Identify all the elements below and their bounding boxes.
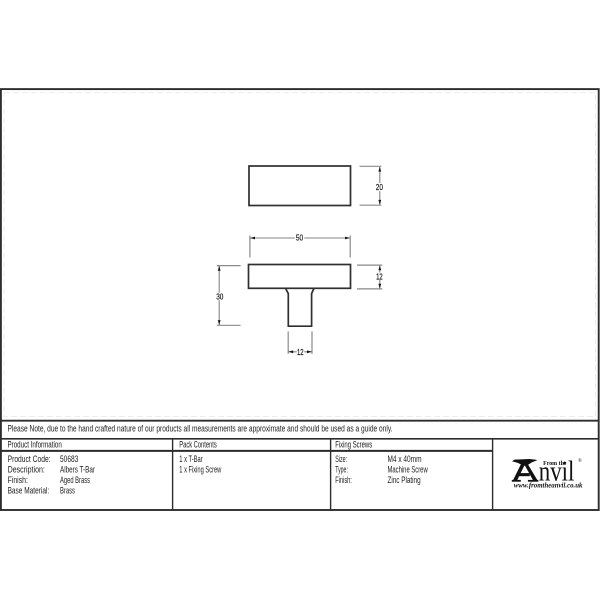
svg-text:12: 12 [376, 272, 383, 281]
svg-text:Fixing Screws: Fixing Screws [335, 439, 372, 449]
svg-text:Description:: Description: [8, 465, 45, 475]
svg-text:Base Material:: Base Material: [8, 485, 50, 495]
svg-text:Machine Screw: Machine Screw [388, 465, 429, 475]
svg-text:1 x T-Bar: 1 x T-Bar [179, 454, 202, 464]
svg-text:Finish:: Finish: [8, 475, 28, 485]
svg-text:Product Information: Product Information [8, 439, 62, 449]
svg-text:30: 30 [216, 292, 224, 301]
svg-text:Product Code:: Product Code: [8, 454, 51, 464]
svg-text:Finish:: Finish: [335, 475, 352, 485]
svg-text:®: ® [578, 458, 582, 464]
svg-text:20: 20 [376, 183, 384, 192]
svg-text:Brass: Brass [60, 485, 75, 495]
svg-text:Size:: Size: [335, 454, 347, 464]
svg-text:50: 50 [296, 233, 304, 242]
svg-text:Albers T-Bar: Albers T-Bar [60, 465, 95, 475]
svg-text:M4 x 40mm: M4 x 40mm [388, 454, 422, 464]
svg-text:Aged Brass: Aged Brass [60, 475, 90, 485]
svg-text:Type:: Type: [335, 465, 348, 475]
svg-text:1 x Fixing Screw: 1 x Fixing Screw [179, 465, 221, 475]
svg-text:12: 12 [297, 348, 304, 357]
svg-text:50683: 50683 [60, 454, 78, 464]
svg-text:Please Note, due to the hand c: Please Note, due to the hand crafted nat… [8, 423, 393, 433]
svg-text:www.fromtheanvil.co.uk: www.fromtheanvil.co.uk [514, 481, 583, 489]
svg-text:Zinc Plating: Zinc Plating [388, 475, 421, 485]
svg-text:Pack Contents: Pack Contents [179, 439, 217, 449]
